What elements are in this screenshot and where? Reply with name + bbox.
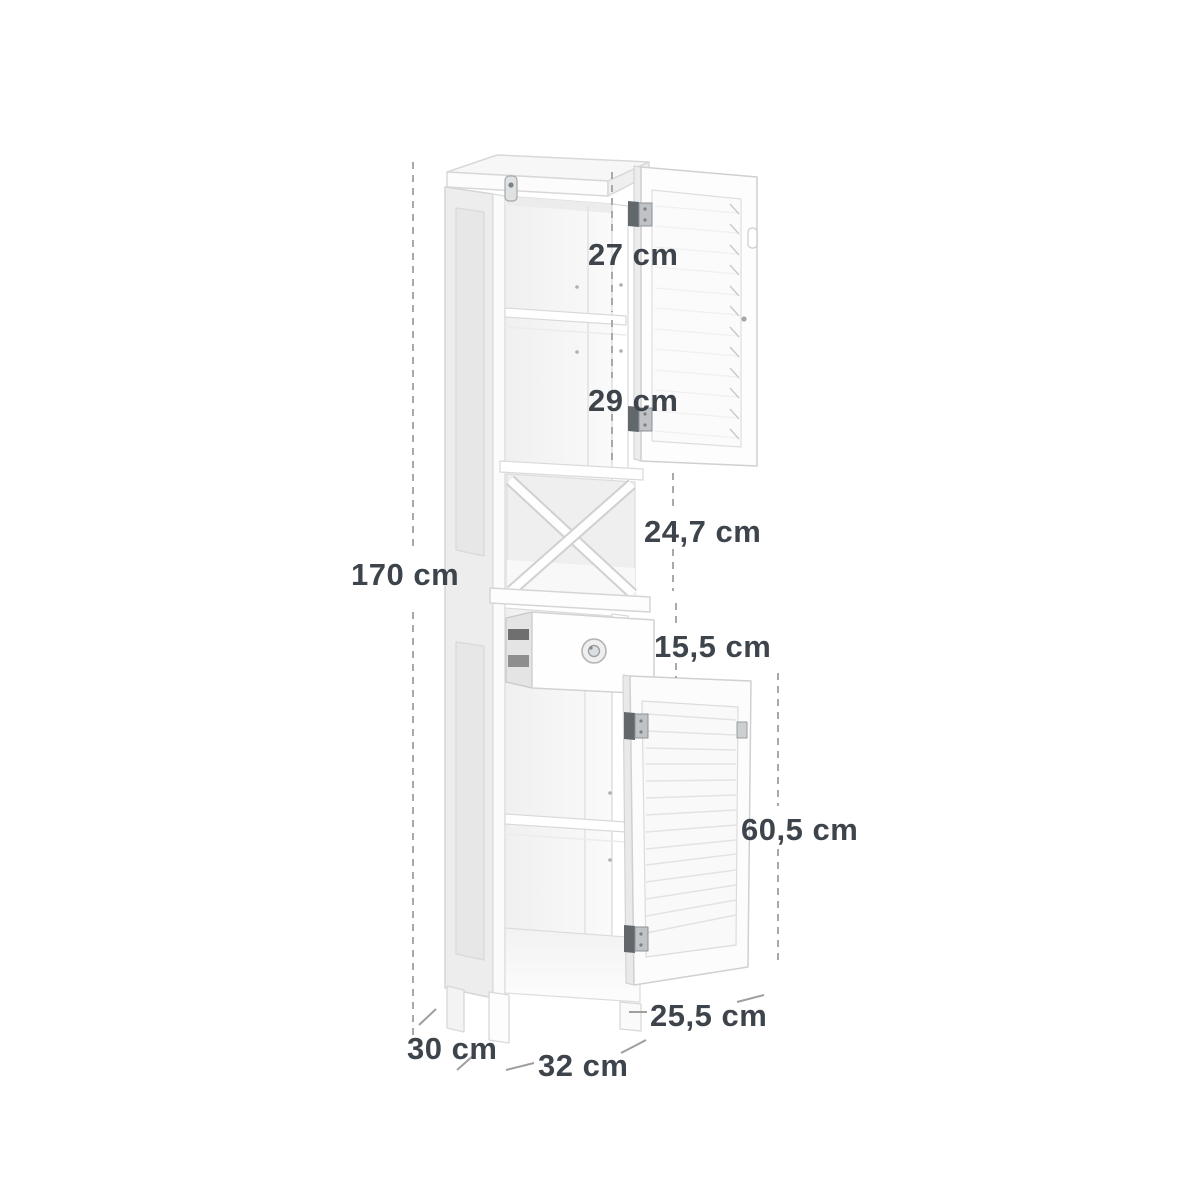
wine-rack-compartment (507, 474, 635, 598)
door-handle-notch (748, 228, 757, 248)
drawer-knob-icon (582, 639, 606, 663)
dimension-label-bottom-opening: 25,5 cm (650, 1000, 767, 1031)
hinge-icon (628, 201, 652, 227)
dimension-label-x-compartment: 24,7 cm (644, 516, 761, 547)
dimension-label-total-height: 170 cm (351, 559, 459, 590)
wall-bracket-icon (505, 176, 517, 201)
dimension-label-top-compartment: 27 cm (588, 239, 678, 270)
hinge-icon (624, 712, 648, 740)
upper-door (628, 166, 757, 466)
cabinet-illustration (0, 0, 1200, 1200)
dimension-label-bottom-door: 60,5 cm (741, 814, 858, 845)
lower-door (623, 675, 751, 985)
dimension-label-width: 32 cm (538, 1050, 628, 1081)
dimension-label-drawer: 15,5 cm (654, 631, 771, 662)
product-dimension-diagram: 170 cm 27 cm 29 cm 24,7 cm 15,5 cm 60,5 … (0, 0, 1200, 1200)
crown-top (447, 155, 649, 196)
cabinet (445, 155, 757, 1043)
door-latch-icon (737, 722, 747, 738)
hinge-icon (624, 925, 648, 953)
dimension-label-second-compartment: 29 cm (588, 385, 678, 416)
dimension-label-depth: 30 cm (407, 1033, 497, 1064)
